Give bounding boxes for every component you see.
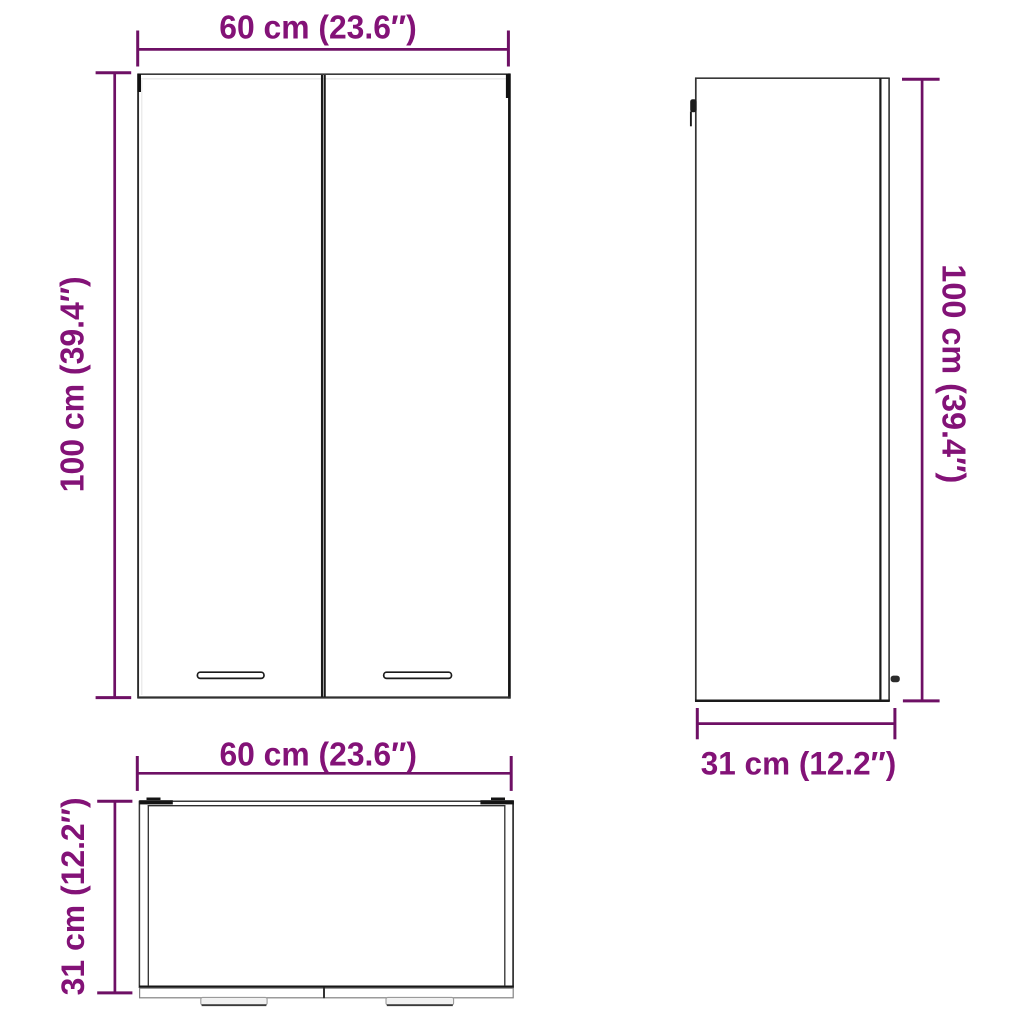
svg-text:60 cm (23.6″): 60 cm (23.6″) — [219, 736, 417, 773]
svg-text:100 cm (39.4″): 100 cm (39.4″) — [934, 264, 971, 483]
svg-text:100 cm (39.4″): 100 cm (39.4″) — [54, 276, 91, 492]
svg-text:31 cm (12.2″): 31 cm (12.2″) — [701, 744, 897, 781]
svg-text:60 cm (23.6″): 60 cm (23.6″) — [219, 9, 417, 46]
svg-text:31 cm (12.2″): 31 cm (12.2″) — [54, 797, 91, 995]
